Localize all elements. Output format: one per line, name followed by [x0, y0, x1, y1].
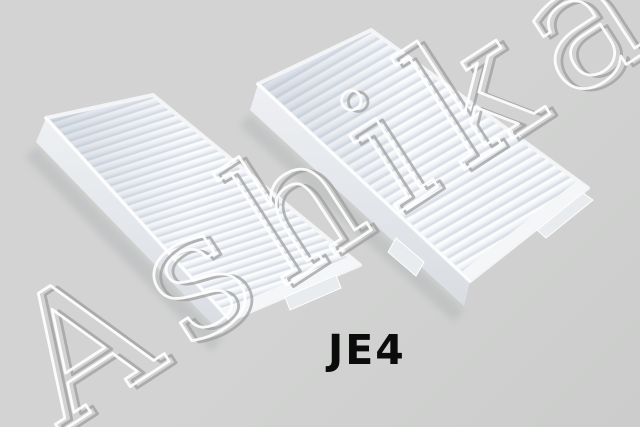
- product-photo: Ashika Ashika JE4: [0, 0, 640, 427]
- product-code-label: JE4: [328, 330, 406, 371]
- filters-illustration: Ashika Ashika: [0, 0, 640, 427]
